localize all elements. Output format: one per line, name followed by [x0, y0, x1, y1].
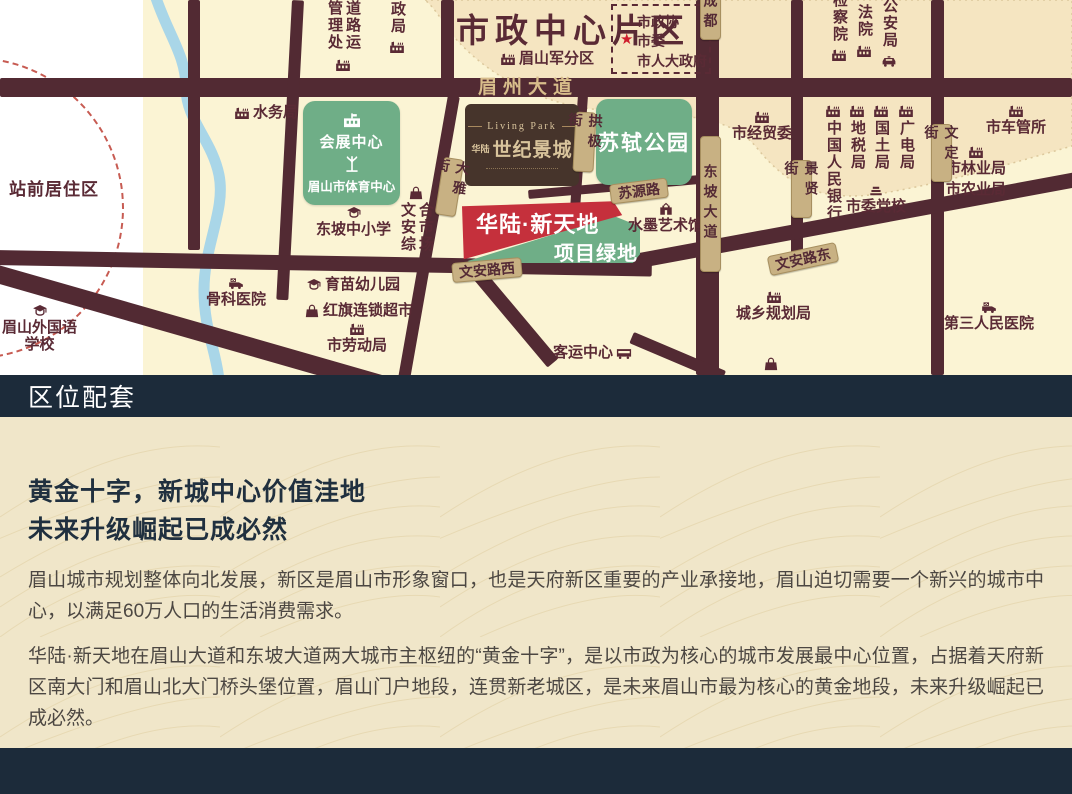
map-poi: 市委党校 [846, 183, 906, 215]
factory-icon [389, 40, 405, 54]
map-poi: 市经贸委 [732, 110, 792, 142]
poi-label: 水务局 [253, 104, 298, 121]
gov-line: 市人大政府 [637, 51, 707, 71]
factory-icon [856, 44, 872, 58]
map-poi: 市车管所 [986, 104, 1046, 136]
century-city-logo: 华陆 世纪景城 [471, 135, 572, 162]
road-label: 拱极街 [572, 111, 596, 172]
living-park-label: Living Park [468, 121, 576, 132]
school-icon [346, 206, 362, 220]
factory-icon [825, 104, 841, 118]
poi-label: 市经贸委 [732, 125, 792, 142]
poi-label: 第三人民医院 [944, 315, 1034, 332]
convention-center-label: 会展中心 [319, 131, 383, 152]
school-icon [32, 304, 48, 318]
poi-label: 客运中心 [553, 344, 613, 361]
poi-label: 市农业局 [946, 181, 1006, 198]
poi-label: 道路运管理处 [325, 0, 361, 56]
map-poi: 广电局 [897, 104, 915, 178]
factory-icon [831, 48, 847, 62]
factory-icon [849, 104, 865, 118]
content-section: 黄金十字，新城中心价值洼地 未来升级崛起已成必然 眉山城市规划整体向北发展，新区… [0, 417, 1072, 748]
poi-label: 城乡规划局 [736, 305, 811, 322]
page: 市政中心片区 站前居住区 ★ 市政协 市委 市人大政府 会展中心 眉山市体育中心… [0, 0, 1072, 794]
factory-icon [500, 52, 516, 66]
map-poi: 育苗幼儿园 [306, 276, 400, 293]
map-poi: 市农业局 [946, 181, 1006, 199]
ambulance-icon [228, 276, 244, 290]
paragraph-1: 眉山城市规划整体向北发展，新区是眉山市形象窗口，也是天府新区重要的产业承接地，眉… [28, 565, 1044, 627]
sports-center-label: 眉山市体育中心 [308, 176, 396, 195]
map-poi: 地税局 [848, 104, 866, 178]
map-poi: 城乡规划局 [736, 290, 811, 322]
factory-icon [754, 110, 770, 124]
section-title: 区位配套 [28, 378, 136, 414]
poi-label: 水墨艺术馆 [628, 217, 703, 234]
road [188, 0, 200, 250]
poi-label: 检察院 [830, 0, 848, 46]
government-box: ★ 市政协 市委 市人大政府 [611, 4, 711, 74]
map-poi: 法院 [855, 4, 873, 58]
hualu-brand-mark: 华陆 [471, 144, 489, 154]
fountain-icon [342, 155, 362, 173]
poi-label: 眉山外国语学校 [2, 319, 77, 353]
paragraph-2: 华陆·新天地在眉山大道和东坡大道两大城市主枢纽的“黄金十字”，是以市政为核心的城… [28, 641, 1044, 734]
project-banner: 华陆·新天地 项目绿地 [462, 200, 640, 263]
poi-label: 中国人民银行 [824, 120, 842, 228]
map-poi: 红旗连锁超市 [304, 302, 413, 319]
police-car-icon [881, 54, 897, 68]
school-icon [306, 278, 322, 292]
factory-icon [898, 104, 914, 118]
poi-label: 眉山军分区 [519, 50, 594, 67]
ambulance-icon [981, 300, 997, 314]
location-map: 市政中心片区 站前居住区 ★ 市政协 市委 市人大政府 会展中心 眉山市体育中心… [0, 0, 1072, 375]
factory-icon [873, 104, 889, 118]
road-label: 大雅街 [435, 157, 465, 218]
map-poi: 水墨艺术馆 [628, 202, 703, 234]
poi-label: 法院 [855, 4, 873, 42]
poi-label: 公安局 [880, 0, 898, 52]
exhibition-building-icon [342, 112, 362, 128]
convention-center-box: 会展中心 眉山市体育中心 [303, 101, 400, 205]
poi-label: 骨科医院 [206, 291, 266, 308]
project-greenland-label: 项目绿地 [554, 237, 638, 266]
poi-label: 市委党校 [846, 198, 906, 215]
bag-icon [304, 304, 320, 318]
station-area-label: 站前居住区 [9, 175, 99, 200]
bag-icon [408, 186, 424, 200]
map-poi: 第三人民医院 [944, 300, 1034, 332]
map-poi: 道路运管理处 [325, 0, 361, 72]
factory-icon [968, 145, 984, 159]
century-city-box: Living Park 华陆 世纪景城 [465, 104, 579, 186]
road [441, 0, 454, 80]
project-name-label: 华陆·新天地 [476, 207, 599, 239]
map-poi: 东坡中小学 [316, 206, 391, 238]
sushi-park-label: 苏轼公园 [598, 127, 690, 157]
poi-label: 国土局 [872, 120, 890, 178]
gov-line: 市政协 [637, 12, 679, 32]
map-poi: 市劳动局 [327, 322, 387, 354]
road-label: 成都 [700, 0, 721, 40]
factory-icon [1008, 104, 1024, 118]
poi-label: 东坡中小学 [316, 221, 391, 238]
map-poi: 中国人民银行 [824, 104, 842, 228]
museum-icon [658, 202, 674, 216]
map-poi: 邮政局 [388, 0, 406, 54]
book-icon [868, 183, 884, 197]
map-poi: 眉山外国语学校 [2, 304, 77, 353]
content-title: 黄金十字，新城中心价值洼地 未来升级崛起已成必然 [28, 473, 1044, 549]
factory-icon [335, 58, 351, 72]
section-header-bar: 区位配套 [0, 375, 1072, 417]
sushi-park-box: 苏轼公园 [596, 99, 692, 185]
map-poi: 检察院 [830, 0, 848, 62]
poi-label: 邮政局 [388, 0, 406, 38]
map-poi [763, 357, 779, 371]
logo-divider [486, 168, 558, 169]
map-poi: 水务局 [234, 104, 298, 121]
bag-icon [763, 357, 779, 371]
factory-icon [766, 290, 782, 304]
map-poi: 国土局 [872, 104, 890, 178]
poi-label: 地税局 [848, 120, 866, 178]
poi-label: 市劳动局 [327, 337, 387, 354]
road-label: 景贤街 [791, 160, 812, 218]
road-label: 文定街 [931, 124, 952, 182]
content-title-line2: 未来升级崛起已成必然 [28, 511, 1044, 549]
road-label: 东坡大道 [700, 136, 721, 272]
footer-bar [0, 748, 1072, 794]
road-wending-street [931, 0, 944, 375]
gov-line: 市委 [637, 31, 665, 51]
road-label: 眉州大道 [478, 78, 618, 97]
map-poi: 骨科医院 [206, 276, 266, 308]
factory-icon [349, 322, 365, 336]
poi-label: 育苗幼儿园 [325, 276, 400, 293]
content-title-line1: 黄金十字，新城中心价值洼地 [28, 473, 1044, 511]
bus-icon [616, 346, 632, 360]
poi-label: 红旗连锁超市 [323, 302, 413, 319]
map-poi: 眉山军分区 [500, 50, 594, 67]
century-city-name: 世纪景城 [493, 135, 573, 162]
poi-label: 市车管所 [986, 119, 1046, 136]
factory-icon [234, 106, 250, 120]
map-poi: 客运中心 [553, 344, 632, 361]
star-icon: ★ [620, 30, 633, 48]
poi-label: 广电局 [897, 120, 915, 178]
map-poi: 公安局 [880, 0, 898, 68]
